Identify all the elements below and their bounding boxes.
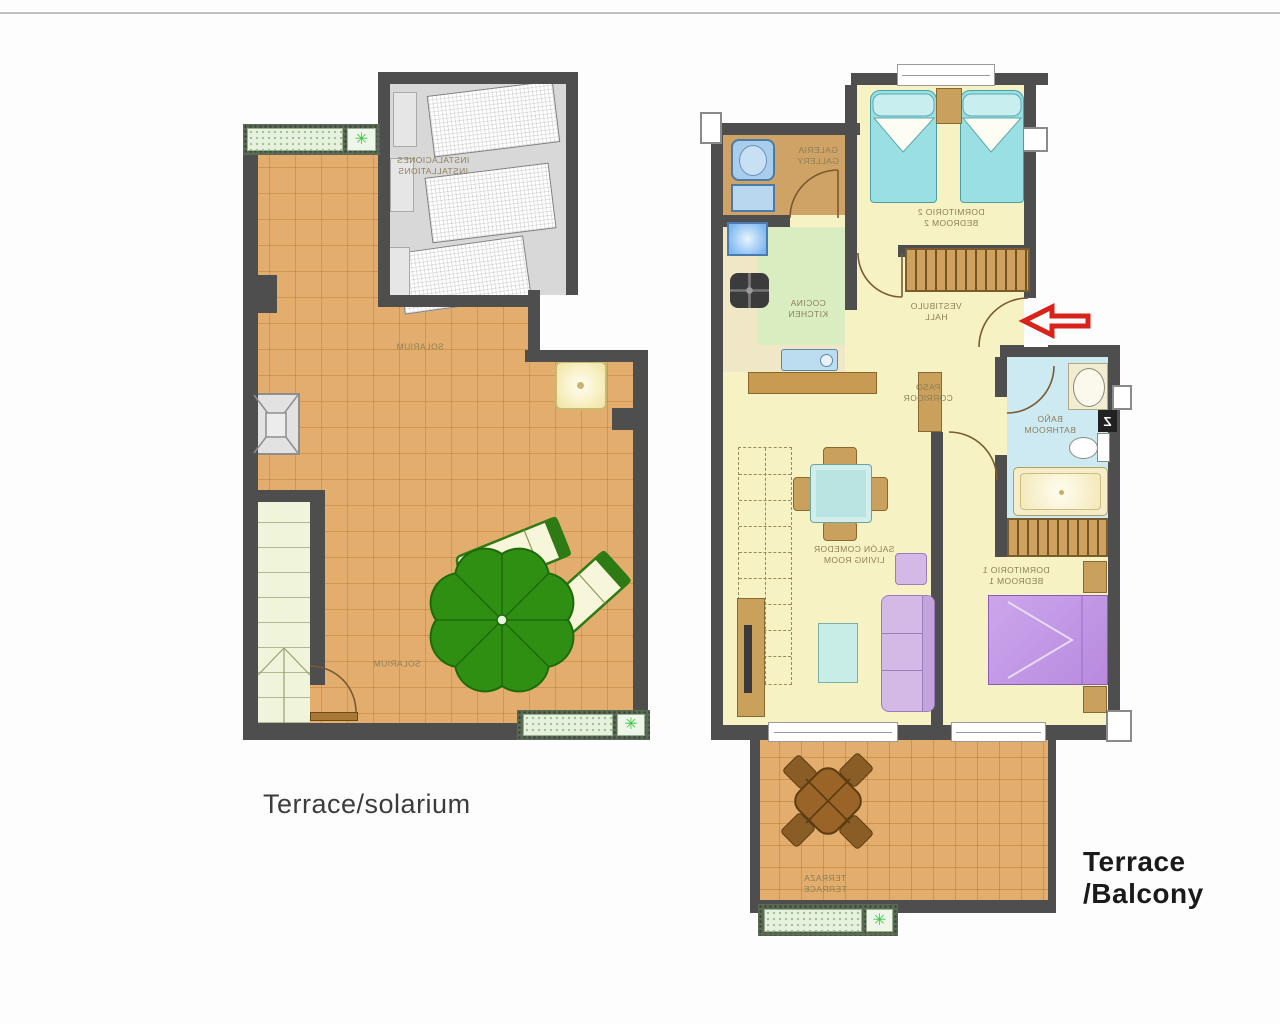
wall — [995, 455, 1007, 557]
floorplan-page: ✳ ✳ INSTALACIONES INSTALLATIONS SOLARIUM… — [0, 0, 1280, 1024]
window-box — [700, 112, 722, 144]
kitchen-floor — [757, 227, 845, 345]
bed-single — [960, 90, 1024, 203]
wall — [995, 357, 1007, 397]
plant-icon: ✳ — [866, 909, 893, 932]
bathroom-sink — [1073, 368, 1105, 407]
window-box — [1106, 710, 1132, 742]
terrace-door-window — [768, 722, 898, 742]
nightstand — [1083, 561, 1107, 593]
coffee-table — [818, 623, 858, 683]
toilet-tank — [1097, 433, 1110, 462]
bed-single — [870, 90, 937, 203]
wall — [711, 123, 860, 135]
dining-chair — [823, 521, 857, 541]
entry-opening — [1024, 298, 1048, 347]
window-box — [1022, 127, 1048, 152]
wall — [1000, 345, 1120, 357]
dining-table — [810, 464, 872, 523]
wall — [845, 85, 857, 227]
laundry-appliance — [731, 184, 775, 212]
bathtub — [1013, 467, 1108, 516]
tv-cabinet — [737, 598, 765, 717]
sofa — [881, 595, 935, 712]
terrace-door-window — [951, 722, 1046, 742]
armchair — [895, 553, 927, 585]
planter-bed — [764, 909, 862, 932]
boiler-box: Z — [1098, 410, 1117, 432]
terrace-wall — [1048, 740, 1056, 913]
window-box — [1112, 385, 1132, 410]
caption-terrace-solarium: Terrace/solarium — [263, 789, 471, 820]
washing-machine-drum — [739, 145, 767, 176]
kitchen-sink-faucet — [820, 354, 833, 367]
window — [897, 64, 995, 86]
wall — [845, 215, 857, 310]
caption-terrace-balcony: Terrace /Balcony — [1083, 846, 1280, 910]
wardrobe — [905, 248, 1030, 292]
nightstand — [936, 88, 962, 124]
kitchen-peninsula — [748, 372, 877, 394]
stove — [730, 273, 769, 308]
fridge — [727, 222, 768, 256]
bed-double — [988, 595, 1108, 685]
corridor-cabinet — [918, 372, 942, 432]
toilet-bowl — [1069, 437, 1098, 459]
wardrobe — [1007, 518, 1108, 557]
terrace-wall — [750, 740, 760, 912]
nightstand — [1083, 686, 1107, 713]
